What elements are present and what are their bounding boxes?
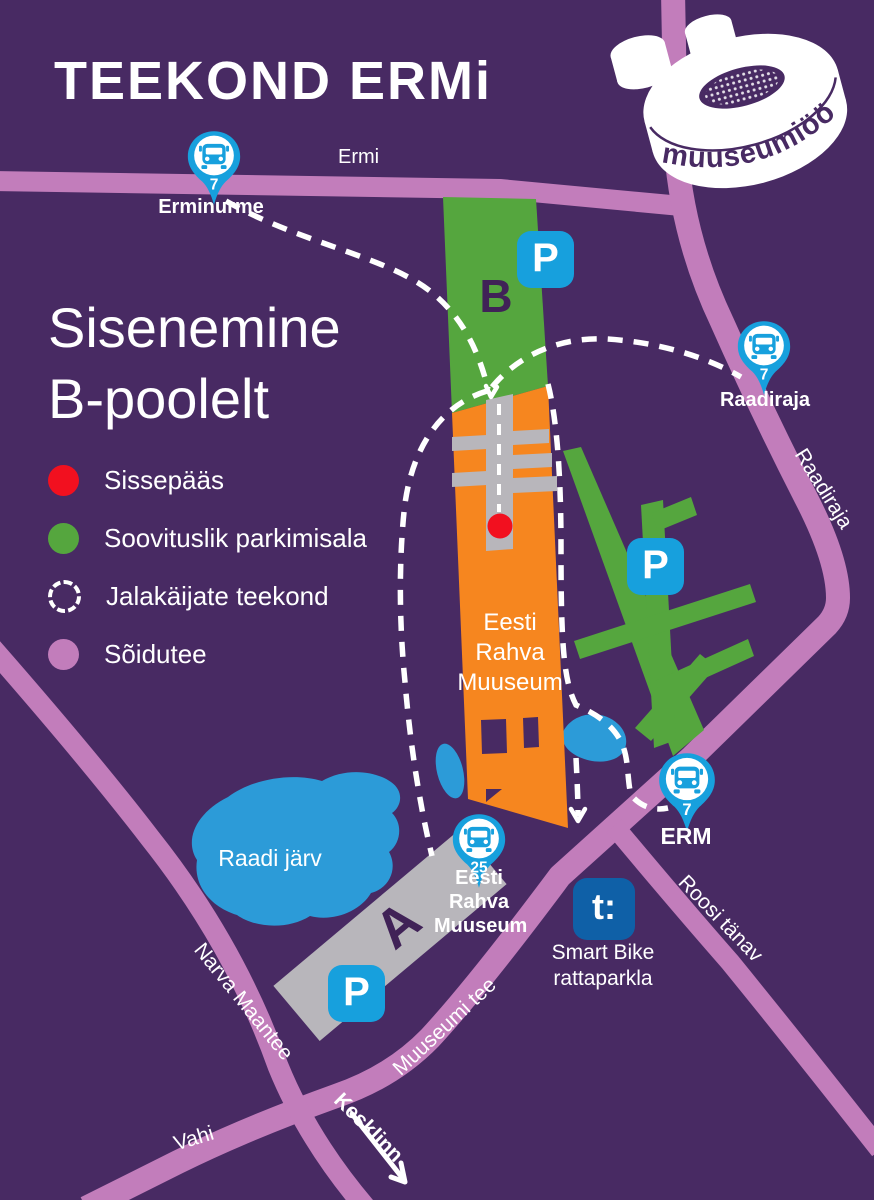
legend-parking: Soovituslik parkimisala: [48, 522, 367, 554]
bus-stop-label-raadiraja: Raadiraja: [685, 388, 845, 412]
label-ermi-road: Ermi: [338, 146, 379, 169]
entrance-dot-icon: [48, 465, 79, 496]
legend-walkway-label: Jalakäijate teekond: [106, 581, 329, 612]
walkway-dashed-icon: [48, 580, 81, 613]
parking-dot-icon: [48, 523, 79, 554]
legend-roadway-label: Sõidutee: [104, 639, 207, 670]
bus-stop-label-erm: ERM: [606, 824, 766, 848]
legend-roadway: Sõidutee: [48, 638, 367, 670]
parking-icon-east: P: [627, 538, 684, 595]
legend-entrance-label: Sissepääs: [104, 465, 224, 496]
svg-text:7: 7: [760, 366, 769, 383]
road-ermi: [0, 181, 692, 207]
legend-walkway: Jalakäijate teekond: [48, 580, 367, 612]
route-branch-arrow: [576, 758, 578, 816]
pond-west: [431, 741, 470, 802]
muuseumioo-logo: muuseumiöö: [607, 0, 874, 212]
bus-stop-label-erminurme: Erminurme: [131, 195, 291, 219]
parking-icon-a: P: [328, 965, 385, 1022]
legend-entrance: Sissepääs: [48, 464, 367, 496]
poster-subtitle: Sisenemine B-poolelt: [48, 292, 341, 434]
legend: Sissepääs Soovituslik parkimisala Jalakä…: [48, 464, 367, 696]
svg-text:7: 7: [210, 176, 219, 193]
map-poster: muuseumiöö TEEKOND ERMi Sisenemine B-poo…: [0, 0, 874, 1200]
smart-bike-icon: t:: [573, 878, 635, 940]
road-narva-maantee: [0, 648, 366, 1200]
smart-bike-label: Smart Bike rattaparkla: [518, 940, 688, 992]
subtitle-line-1: Sisenemine: [48, 292, 341, 363]
museum-building-shape: [452, 386, 568, 828]
entrance-dot: [488, 514, 513, 539]
label-raadi-lake: Raadi järv: [200, 845, 340, 871]
label-museum-building: Eesti Rahva Muuseum: [455, 608, 565, 698]
bus-stop-label-museum: Eesti Rahva Muuseum: [434, 866, 524, 938]
poster-title: TEEKOND ERMi: [54, 50, 492, 112]
subtitle-line-2: B-poolelt: [48, 363, 341, 434]
legend-parking-label: Soovituslik parkimisala: [104, 523, 367, 554]
roadway-dot-icon: [48, 639, 79, 670]
parking-icon-b: P: [517, 231, 574, 288]
svg-text:7: 7: [682, 801, 691, 819]
